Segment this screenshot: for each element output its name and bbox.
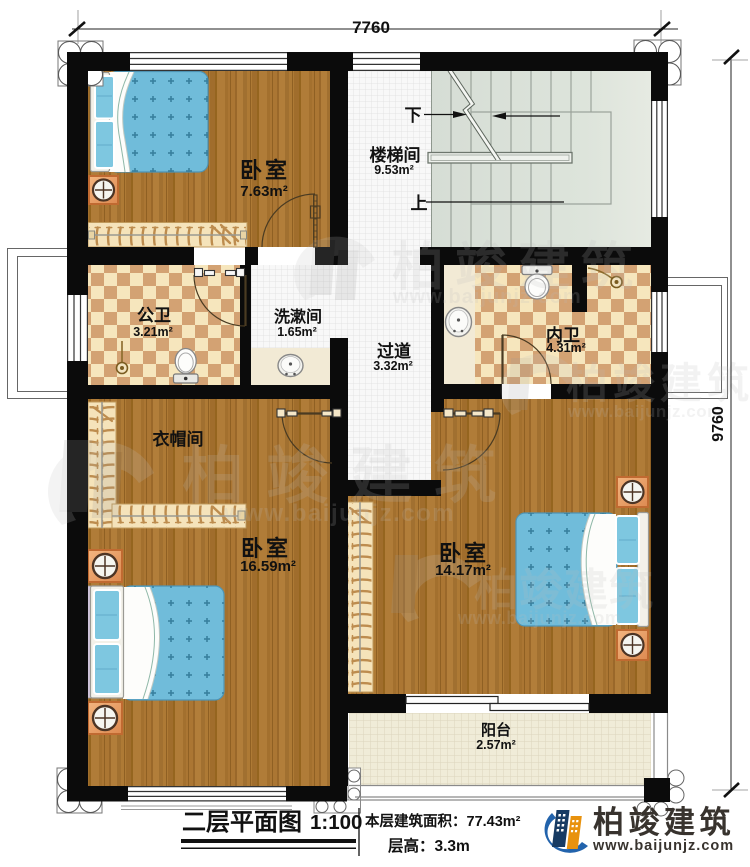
svg-text:2.57m²: 2.57m² — [476, 738, 516, 752]
svg-text:16.59m²: 16.59m² — [240, 558, 296, 575]
svg-text:衣帽间: 衣帽间 — [153, 429, 204, 449]
svg-text:洗漱间: 洗漱间 — [274, 307, 322, 326]
svg-text:二层平面图: 二层平面图 — [182, 809, 302, 836]
svg-text:www.baijunjz.com: www.baijunjz.com — [457, 608, 621, 628]
svg-text:过道: 过道 — [377, 341, 411, 361]
svg-text:7.63m²: 7.63m² — [240, 183, 288, 200]
svg-text:www.baijunjz.com: www.baijunjz.com — [223, 500, 455, 527]
svg-text:www.baijunjz.com: www.baijunjz.com — [392, 286, 582, 308]
svg-text:楼梯间: 楼梯间 — [370, 145, 421, 165]
svg-text:柏竣建筑: 柏竣建筑 — [566, 360, 750, 407]
svg-text:卧室: 卧室 — [240, 158, 290, 183]
svg-text:7760: 7760 — [352, 18, 390, 37]
svg-text:4.31m²: 4.31m² — [546, 341, 586, 355]
svg-text:本层建筑面积：77.43m²: 本层建筑面积：77.43m² — [365, 812, 521, 830]
svg-text:阳台: 阳台 — [481, 721, 511, 739]
svg-text:下: 下 — [405, 106, 422, 125]
svg-text:上: 上 — [411, 194, 428, 213]
svg-text:www.baijunjz.com: www.baijunjz.com — [592, 838, 734, 854]
svg-text:www.baijunjz.com: www.baijunjz.com — [567, 402, 723, 421]
svg-text:层高：3.3m: 层高：3.3m — [388, 836, 470, 855]
svg-text:3.32m²: 3.32m² — [373, 359, 413, 373]
svg-text:柏竣建筑: 柏竣建筑 — [593, 805, 735, 840]
svg-text:9760: 9760 — [710, 406, 727, 442]
svg-text:1.65m²: 1.65m² — [277, 325, 317, 339]
svg-text:14.17m²: 14.17m² — [435, 562, 491, 579]
svg-text:1:100: 1:100 — [310, 811, 362, 834]
svg-text:3.21m²: 3.21m² — [133, 325, 173, 339]
svg-text:9.53m²: 9.53m² — [374, 163, 414, 177]
svg-text:公卫: 公卫 — [137, 306, 171, 325]
